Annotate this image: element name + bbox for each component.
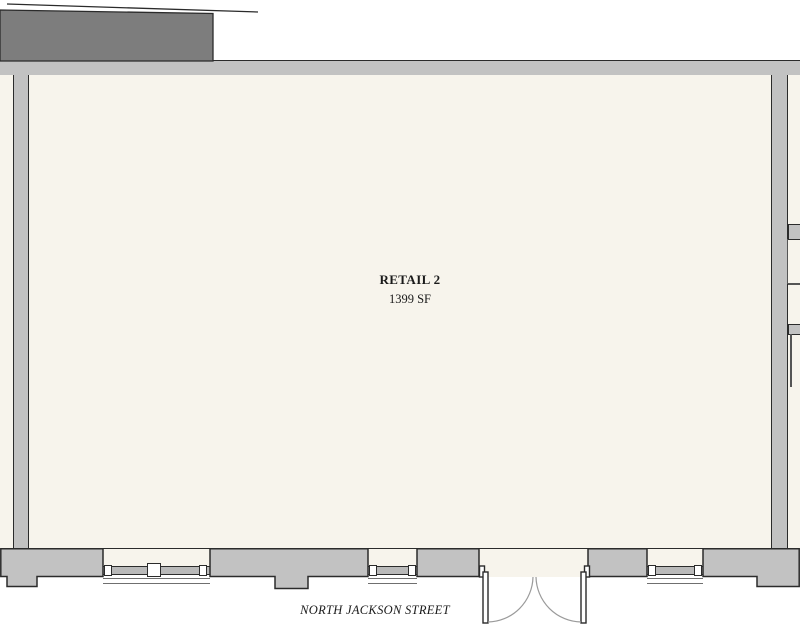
pier-south-4 (588, 549, 647, 577)
roof-shape (0, 10, 213, 61)
window-sill-line (103, 578, 210, 579)
storefront-window-3 (647, 548, 703, 588)
west-wall (13, 75, 29, 550)
window-sill-line (647, 583, 703, 584)
east-wall (771, 75, 788, 549)
window-sill-line (368, 583, 417, 584)
mullion-block (199, 565, 207, 576)
room-name: RETAIL 2 (310, 272, 510, 288)
room-label: RETAIL 2 1399 SF (310, 272, 510, 307)
entry-alcove (479, 548, 588, 577)
street-label: NORTH JACKSON STREET (268, 603, 482, 618)
adjacent-space-west (0, 75, 13, 549)
pier-southeast-corner (703, 549, 799, 587)
east-opening-frame-line (787, 239, 789, 284)
north-wall (0, 60, 800, 76)
adjacent-space-east (788, 75, 800, 548)
window-sill-line (647, 578, 703, 579)
room-area: 1399 SF (310, 292, 510, 307)
door-swing-arc-right (536, 577, 581, 622)
pier-south-2 (210, 549, 368, 589)
door-leaf-left (483, 572, 488, 623)
mullion-block-center (147, 563, 161, 577)
window-sill-line (368, 578, 417, 579)
retail-room-floor (29, 75, 771, 548)
storefront-window-2 (368, 548, 417, 588)
east-jamb-upper (788, 224, 800, 240)
pier-south-3 (417, 549, 479, 577)
east-opening-tick (788, 283, 800, 285)
east-door-leaf-line (790, 334, 792, 387)
mullion-block (648, 565, 656, 576)
mullion-block (694, 565, 702, 576)
east-jamb-lower (788, 324, 800, 335)
pier-southwest (1, 549, 103, 587)
floor-plan-canvas: RETAIL 2 1399 SF NORTH JACKSON STREET (0, 0, 800, 632)
mullion-block (408, 565, 416, 576)
roof-edge-line (7, 4, 258, 12)
window-sill-line (103, 583, 210, 584)
mullion-block (104, 565, 112, 576)
door-swing-arc-left (488, 577, 533, 622)
mullion-block (369, 565, 377, 576)
storefront-window-1 (103, 548, 210, 588)
door-leaf-right (581, 572, 586, 623)
